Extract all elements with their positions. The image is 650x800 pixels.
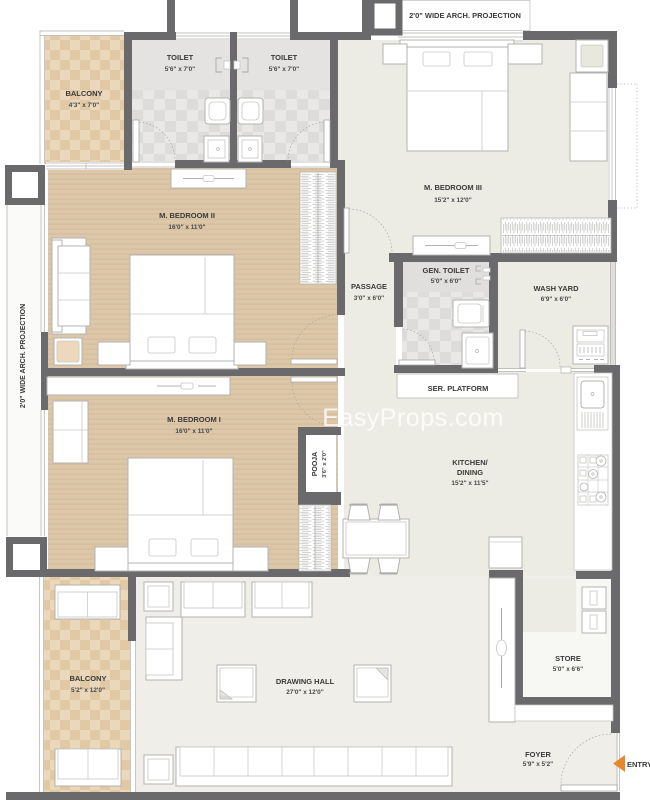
- svg-text:16'0" x 11'0": 16'0" x 11'0": [175, 428, 212, 435]
- svg-text:2'0" WIDE ARCH. PROJECTION: 2'0" WIDE ARCH. PROJECTION: [20, 304, 27, 408]
- svg-text:FOYER: FOYER: [525, 750, 551, 759]
- svg-text:M. BEDROOM II: M. BEDROOM II: [159, 211, 215, 220]
- svg-text:ENTRY: ENTRY: [627, 760, 650, 769]
- svg-text:TOILET: TOILET: [167, 53, 194, 62]
- svg-text:3'0" x 6'0": 3'0" x 6'0": [354, 295, 384, 302]
- svg-text:15'2" x 11'5": 15'2" x 11'5": [451, 480, 488, 487]
- svg-text:GEN. TOILET: GEN. TOILET: [423, 266, 470, 275]
- svg-text:KITCHEN/: KITCHEN/: [452, 458, 488, 467]
- svg-text:M. BEDROOM I: M. BEDROOM I: [167, 415, 221, 424]
- svg-text:5'6" x 7'0": 5'6" x 7'0": [269, 66, 299, 73]
- svg-text:EasyProps.com: EasyProps.com: [322, 404, 504, 432]
- svg-text:WASH YARD: WASH YARD: [533, 284, 579, 293]
- svg-text:M. BEDROOM III: M. BEDROOM III: [424, 183, 482, 192]
- svg-text:2'0" WIDE ARCH. PROJECTION: 2'0" WIDE ARCH. PROJECTION: [409, 11, 521, 20]
- svg-text:POOJA: POOJA: [312, 452, 319, 477]
- svg-text:6'9" x 6'0": 6'9" x 6'0": [541, 296, 571, 303]
- svg-text:TOILET: TOILET: [271, 53, 298, 62]
- svg-text:5'0" x 6'0": 5'0" x 6'0": [431, 278, 461, 285]
- svg-text:BALCONY: BALCONY: [69, 674, 106, 683]
- svg-text:DINING: DINING: [457, 468, 483, 477]
- svg-text:3'6" x 2'0": 3'6" x 2'0": [322, 450, 328, 478]
- svg-text:SER. PLATFORM: SER. PLATFORM: [428, 384, 489, 393]
- svg-text:5'9" x 5'2": 5'9" x 5'2": [523, 761, 553, 768]
- svg-text:5'0" x 6'6": 5'0" x 6'6": [553, 666, 583, 673]
- svg-text:PASSAGE: PASSAGE: [351, 282, 387, 291]
- svg-text:5'6" x 7'0": 5'6" x 7'0": [165, 66, 195, 73]
- svg-text:STORE: STORE: [555, 654, 581, 663]
- svg-text:5'2" x 12'0": 5'2" x 12'0": [71, 687, 105, 694]
- svg-text:15'2" x 12'0": 15'2" x 12'0": [434, 197, 472, 204]
- svg-text:16'0" x 11'0": 16'0" x 11'0": [168, 224, 205, 231]
- svg-text:27'0" x 12'0": 27'0" x 12'0": [286, 689, 324, 696]
- svg-text:BALCONY: BALCONY: [65, 89, 102, 98]
- svg-text:DRAWING HALL: DRAWING HALL: [276, 677, 335, 686]
- svg-text:4'3" x 7'0": 4'3" x 7'0": [69, 102, 99, 109]
